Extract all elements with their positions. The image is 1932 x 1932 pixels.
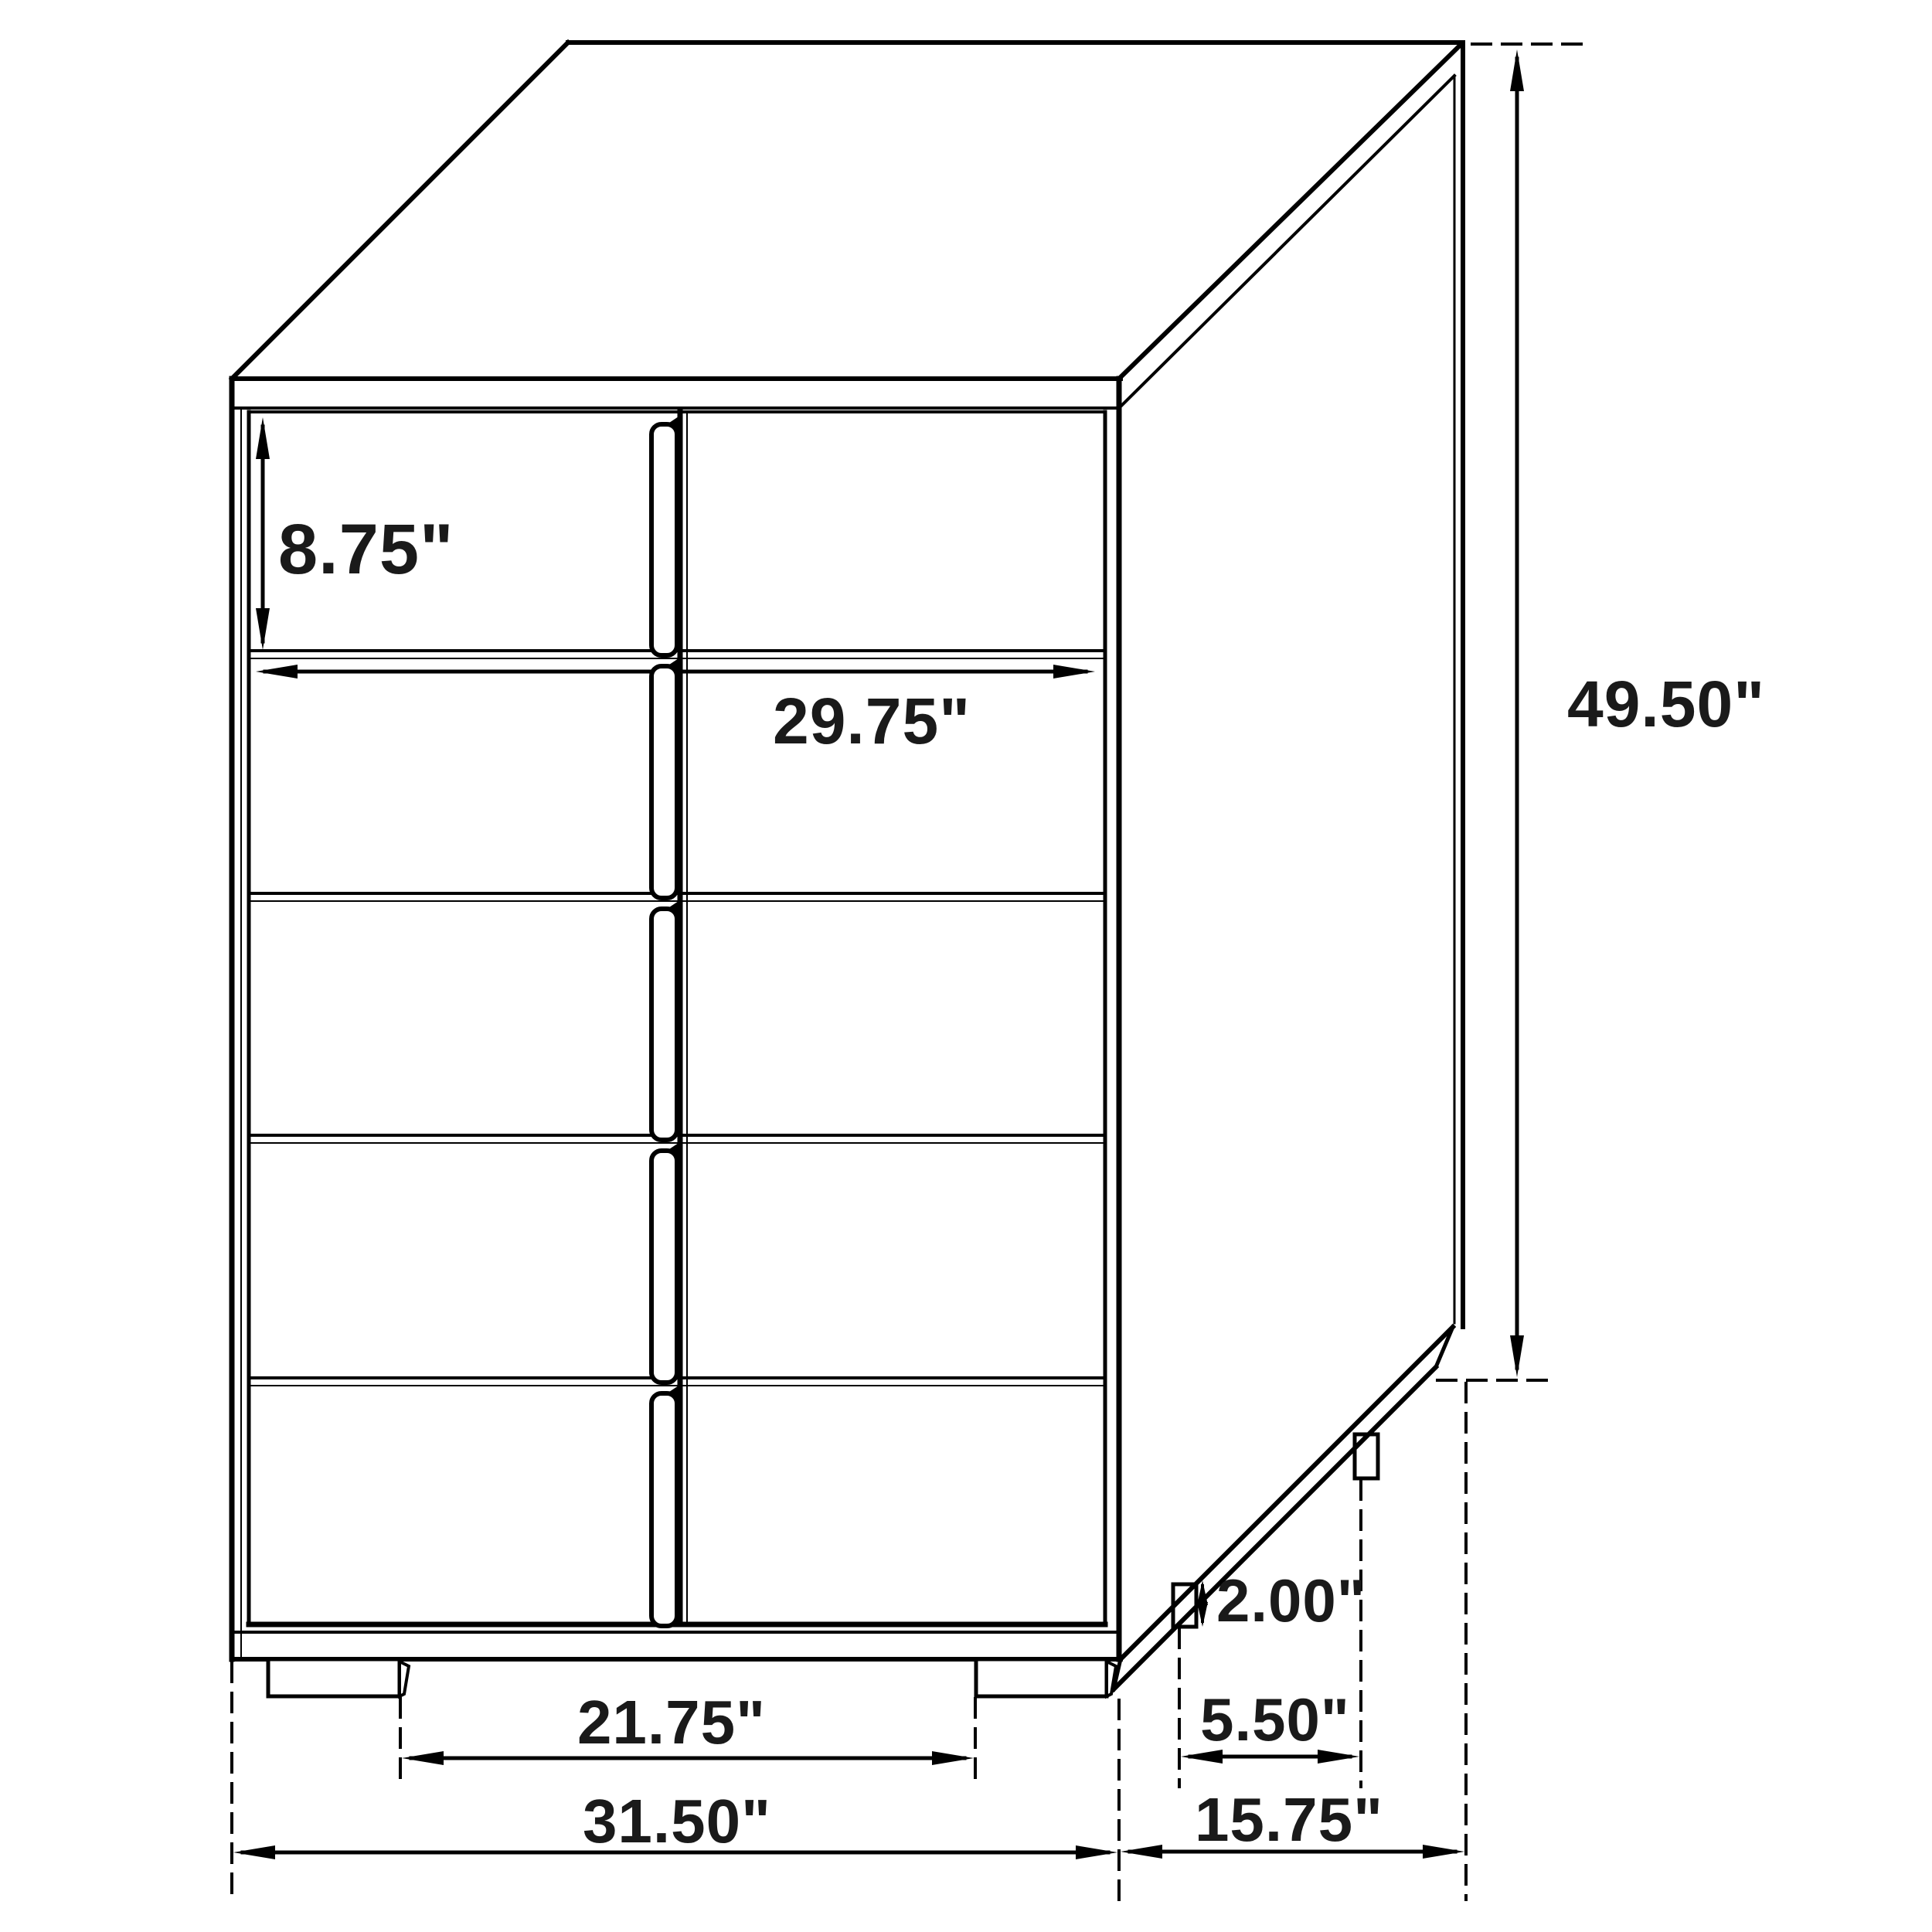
arrowhead — [256, 665, 298, 679]
cabinet-side-panel — [1119, 43, 1463, 1659]
arrowhead — [1510, 49, 1524, 91]
drawer-handle — [651, 1393, 677, 1626]
arrowhead — [932, 1751, 974, 1765]
arrowhead — [256, 417, 270, 459]
label-top-drawer-height: 8.75" — [278, 510, 454, 589]
drawer-handle — [651, 424, 677, 655]
dim-leg-height-line — [1197, 1580, 1208, 1627]
label-side-leg-spacing: 5.50" — [1200, 1685, 1350, 1753]
front-leg-left — [268, 1659, 400, 1696]
top-face-right-diagonal-edge — [1119, 44, 1461, 379]
dimension-labels: 8.75" 29.75" 49.50" 2.00" 5.50" 21.75" 3… — [278, 510, 1765, 1855]
arrowhead — [402, 1751, 444, 1765]
drawer-handle — [651, 909, 677, 1140]
arrowhead — [233, 1845, 275, 1859]
arrowhead — [1510, 1335, 1524, 1377]
label-overall-height: 49.50" — [1567, 668, 1765, 740]
drawer-divider — [680, 412, 687, 1624]
arrowhead — [1076, 1845, 1117, 1859]
label-overall-width: 31.50" — [583, 1787, 771, 1855]
extension-lines — [232, 44, 1590, 1900]
side-base-rail — [1114, 1327, 1453, 1689]
arrowhead — [1423, 1845, 1464, 1859]
dimension-drawing-canvas: 8.75" 29.75" 49.50" 2.00" 5.50" 21.75" 3… — [0, 0, 1932, 1932]
arrowhead — [1197, 1602, 1208, 1627]
dim-overall-height-line — [1510, 49, 1524, 1377]
label-overall-depth: 15.75" — [1195, 1785, 1383, 1854]
drawer-handles — [651, 415, 681, 1626]
drawer-handle — [651, 1151, 677, 1383]
label-front-leg-spacing: 21.75" — [577, 1688, 766, 1757]
side-leg-back — [1355, 1434, 1378, 1478]
arrowhead — [1053, 665, 1095, 679]
arrowhead — [1121, 1845, 1162, 1859]
arrowhead — [256, 608, 270, 650]
chest-dimension-diagram: 8.75" 29.75" 49.50" 2.00" 5.50" 21.75" 3… — [0, 0, 1932, 1932]
front-leg-right — [976, 1659, 1107, 1696]
dim-top-drawer-height-line — [256, 417, 270, 650]
label-drawer-width: 29.75" — [773, 685, 971, 757]
side-rail-bottom-edge — [1114, 1367, 1436, 1689]
drawer-handle — [651, 666, 677, 898]
front-leg-left-side-facet — [400, 1662, 409, 1696]
label-leg-height: 2.00" — [1216, 1566, 1366, 1634]
top-face-left-diagonal-edge — [232, 43, 568, 379]
top-slab-right-thickness-edge — [1119, 76, 1454, 408]
cabinet-top-face — [232, 43, 1463, 408]
